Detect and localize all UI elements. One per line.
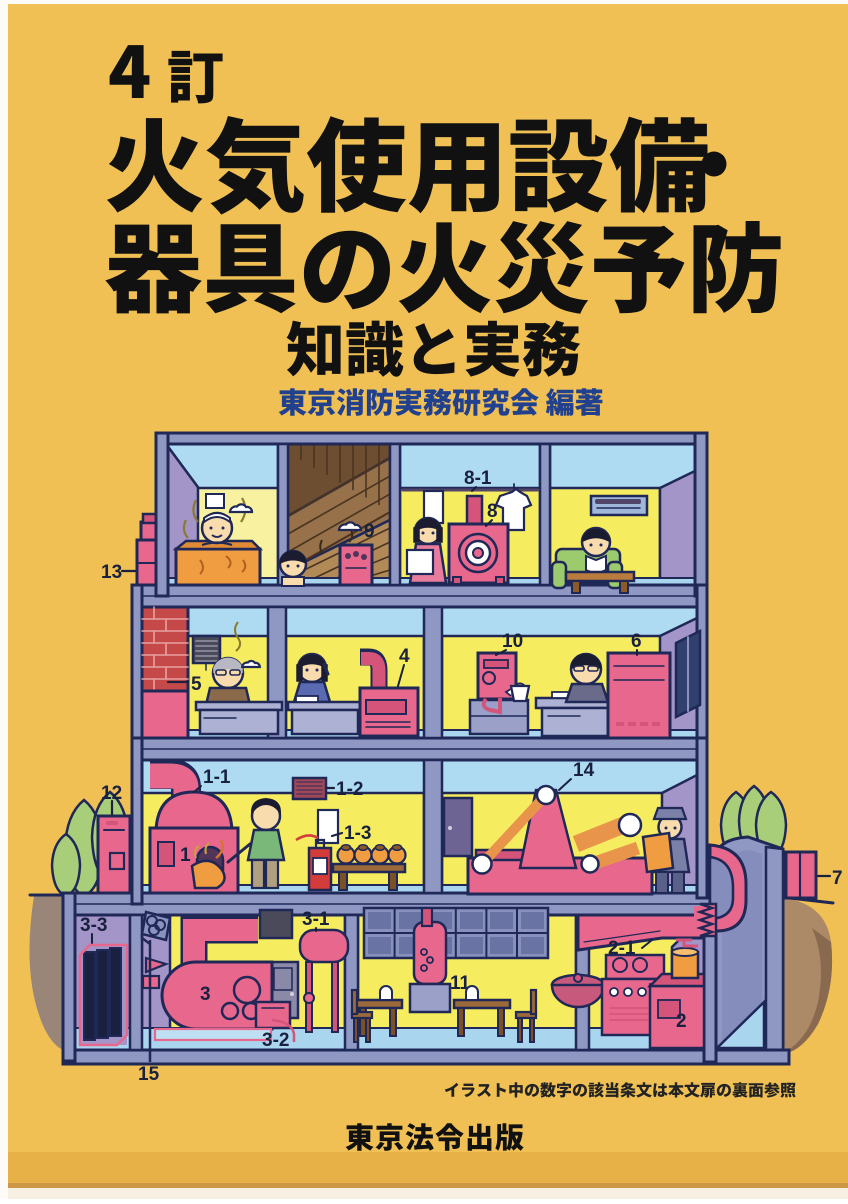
svg-text:3-2: 3-2 (262, 1030, 289, 1051)
svg-text:3: 3 (200, 984, 211, 1005)
svg-text:3-1: 3-1 (302, 909, 330, 930)
svg-text:1-2: 1-2 (336, 779, 363, 800)
svg-text:1-3: 1-3 (344, 823, 371, 844)
svg-text:1: 1 (180, 845, 191, 866)
svg-text:13: 13 (101, 562, 122, 583)
svg-text:15: 15 (138, 1064, 160, 1085)
svg-text:14: 14 (573, 760, 595, 781)
svg-text:7: 7 (832, 868, 843, 889)
svg-text:9: 9 (364, 521, 375, 542)
svg-text:3-3: 3-3 (80, 915, 107, 936)
svg-text:4: 4 (399, 646, 410, 667)
svg-text:10: 10 (502, 631, 523, 652)
svg-text:8-1: 8-1 (464, 468, 492, 489)
svg-text:2: 2 (676, 1011, 687, 1032)
svg-text:6: 6 (631, 631, 642, 652)
svg-text:1-1: 1-1 (203, 767, 231, 788)
svg-text:8: 8 (487, 501, 498, 522)
svg-text:5: 5 (191, 674, 202, 695)
